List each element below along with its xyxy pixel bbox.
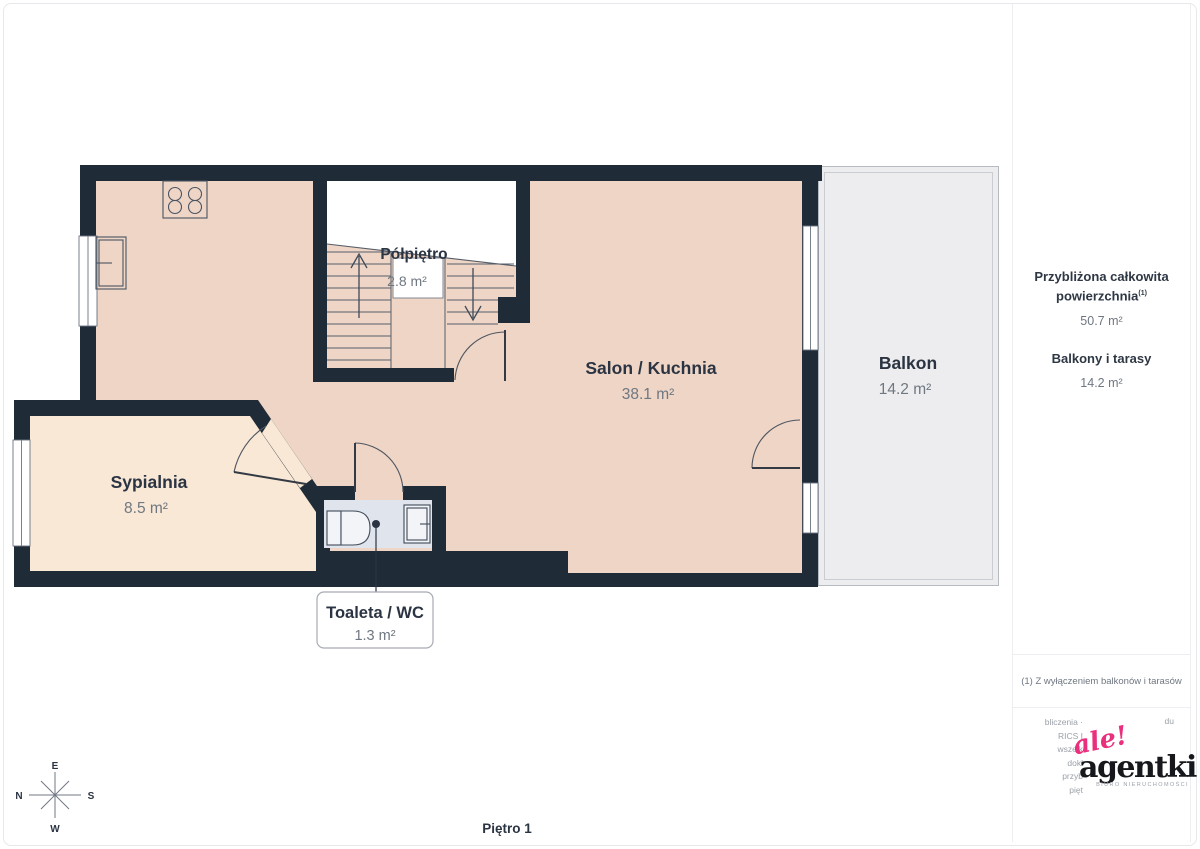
room-label-sypialnia: Sypialnia: [111, 472, 188, 492]
room-area-sypialnia: 8.5 m²: [124, 500, 168, 517]
agency-logo: ale! agentki BIURO NIERUCHOMOŚCI: [1079, 750, 1189, 788]
info-sidebar: Przybliżona całkowita powierzchnia(1) 50…: [1012, 4, 1191, 842]
room-label-balkon: Balkon: [879, 353, 937, 373]
wall-stairs-stub: [498, 297, 530, 323]
compass-bottom: W: [50, 824, 60, 835]
callout-anchor-dot: [372, 520, 380, 528]
washbasin-icon: [404, 505, 430, 543]
room-label-polpietro: Półpiętro: [380, 246, 447, 263]
area-summary-section: Przybliżona całkowita powierzchnia(1) 50…: [1013, 4, 1190, 654]
room-area-balkon: 14.2 m²: [879, 381, 932, 398]
window-salon-upper: [803, 226, 818, 350]
balcony: [819, 167, 999, 586]
agency-section: bliczenia · RICS I wszelk dokł przyb pię…: [1013, 708, 1190, 842]
disclaimer-fragment-right: du: [1165, 716, 1174, 726]
compass-rose-icon: E S W N: [15, 761, 94, 835]
footnote-text: (1) Z wyłączeniem balkonów i tarasów: [1021, 676, 1182, 687]
total-area-label: Przybliżona całkowita powierzchnia(1): [1026, 268, 1178, 304]
compass-left: N: [15, 791, 22, 802]
room-area-toaleta: 1.3 m²: [354, 628, 395, 644]
disclaimer-line: bliczenia ·: [1031, 716, 1083, 730]
balconies-value: 14.2 m²: [1026, 376, 1178, 390]
room-area-polpietro: 2.8 m²: [387, 273, 427, 289]
wall-bottom-salon: [560, 573, 818, 587]
floor-name: Piętro 1: [482, 821, 532, 836]
footnote-marker: (1): [1138, 290, 1147, 297]
room-label-toaleta: Toaleta / WC: [326, 604, 424, 622]
window-bedroom: [13, 440, 30, 546]
wall-stairs-left: [313, 181, 327, 382]
compass-top: E: [52, 761, 59, 772]
total-area-value: 50.7 m²: [1026, 314, 1178, 328]
footnote-section: (1) Z wyłączeniem balkonów i tarasów: [1013, 654, 1190, 708]
wall-toilet-right: [432, 486, 446, 565]
compass-right: S: [88, 791, 95, 802]
toilet-icon: [327, 511, 370, 545]
disclaimer-line: przyb: [1031, 770, 1083, 784]
room-label-salon: Salon / Kuchnia: [585, 358, 717, 378]
wall-toilet-left: [316, 486, 324, 556]
disclaimer-line: pięt: [1031, 784, 1083, 798]
logo-tagline-text: BIURO NIERUCHOMOŚCI: [1079, 782, 1189, 788]
room-area-salon: 38.1 m²: [622, 386, 675, 403]
window-salon-lower: [803, 483, 818, 533]
wall-top: [80, 165, 822, 181]
floorplan-page: Półpiętro 2.8 m² Salon / Kuchnia 38.1 m²…: [0, 0, 1200, 849]
wall-stairs-bottom: [313, 368, 454, 382]
window-kitchen: [79, 236, 97, 326]
balconies-label: Balkony i tarasy: [1026, 350, 1178, 367]
